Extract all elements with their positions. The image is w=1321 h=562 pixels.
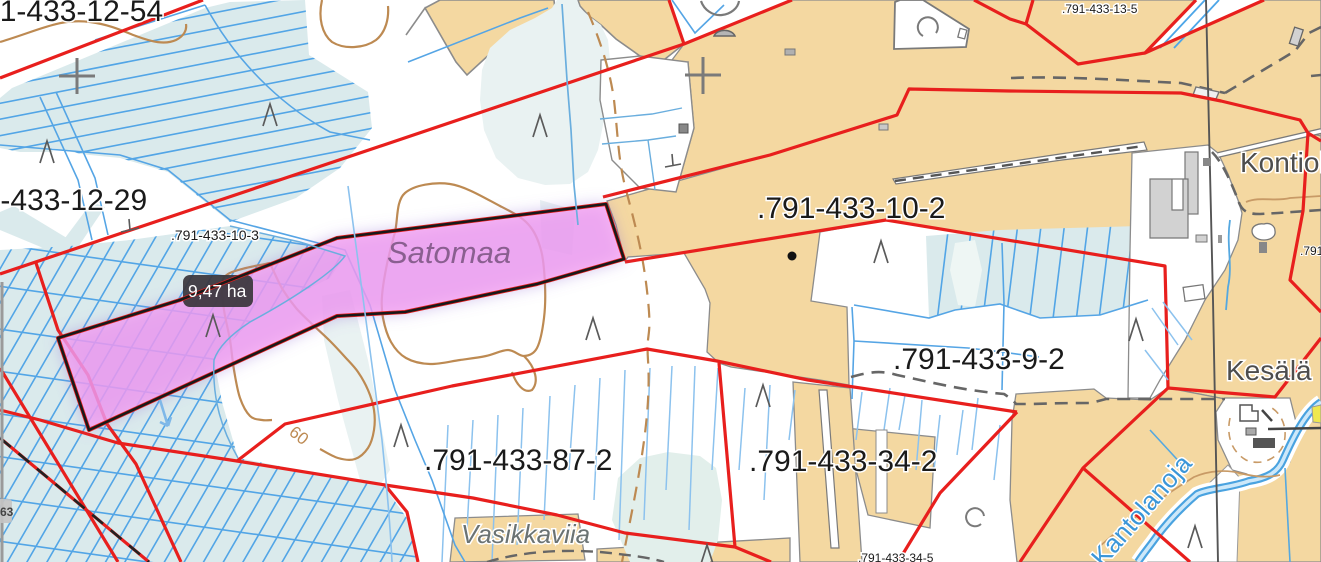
svg-text:Kontiol: Kontiol (1240, 147, 1321, 178)
svg-text:.791-433-87-2: .791-433-87-2 (424, 444, 612, 477)
svg-text:.791-433-12-29: .791-433-12-29 (0, 184, 147, 217)
svg-text:63: 63 (0, 505, 14, 519)
svg-text:Vasikkaviia: Vasikkaviia (461, 519, 590, 549)
svg-text:.791-433-10-2: .791-433-10-2 (757, 192, 945, 225)
svg-text:.791-433-13-5: .791-433-13-5 (1062, 2, 1138, 16)
svg-text:.791-433-34-2: .791-433-34-2 (749, 445, 937, 478)
svg-text:9,47 ha: 9,47 ha (188, 281, 247, 301)
svg-text:.791-433-34-5: .791-433-34-5 (858, 551, 934, 562)
svg-text:.791-433-12-54: .791-433-12-54 (0, 0, 163, 28)
svg-text:Satomaa: Satomaa (387, 235, 511, 270)
svg-text:.791-433-10-3: .791-433-10-3 (171, 227, 259, 243)
svg-text:.791-: .791- (1300, 244, 1321, 258)
svg-text:Kesälä: Kesälä (1226, 355, 1312, 386)
svg-text:.791-433-9-2: .791-433-9-2 (893, 343, 1065, 376)
